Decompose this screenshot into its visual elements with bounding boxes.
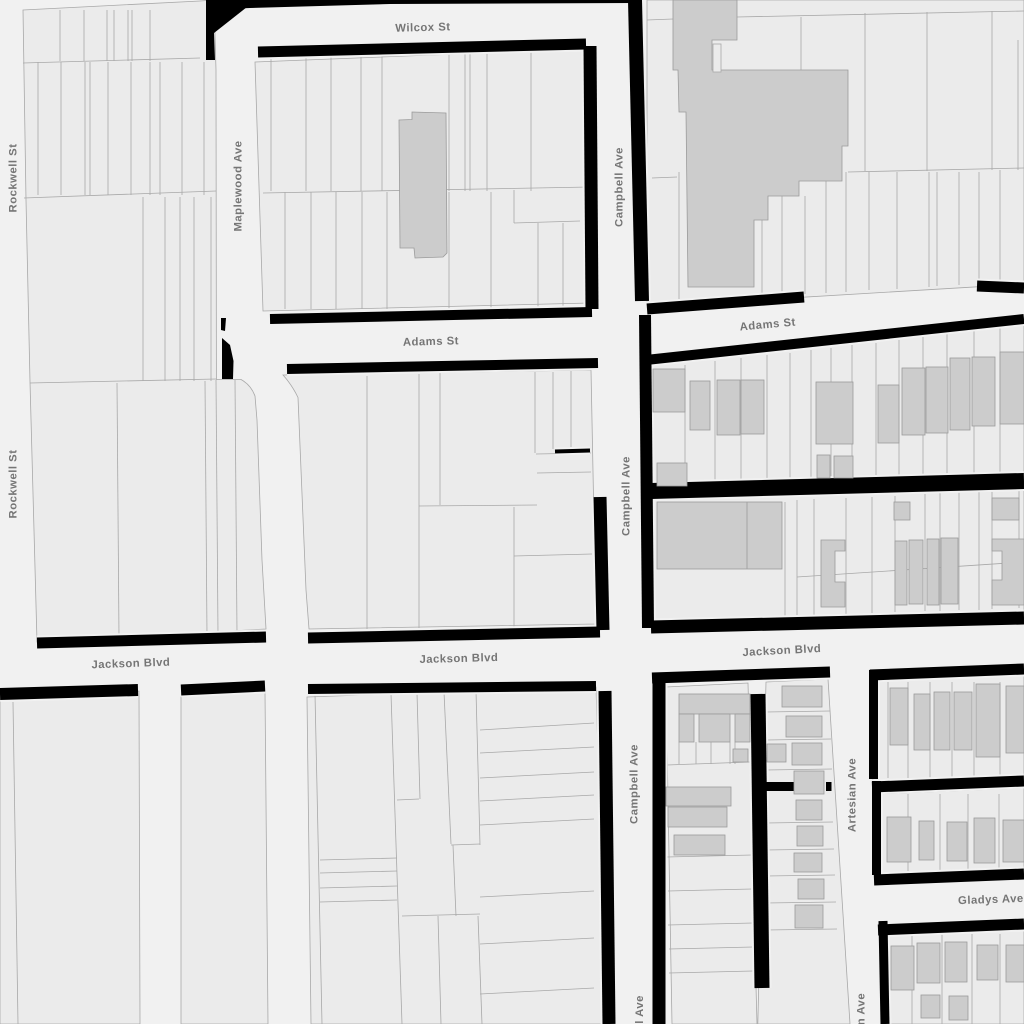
svg-text:Wilcox St: Wilcox St — [395, 21, 451, 34]
svg-text:Campbell Ave: Campbell Ave — [621, 456, 633, 536]
svg-text:Adams St: Adams St — [403, 335, 459, 348]
svg-text:Rockwell St: Rockwell St — [8, 450, 20, 519]
svg-text:Gladys Ave: Gladys Ave — [958, 893, 1024, 907]
svg-text:Rockwell St: Rockwell St — [8, 144, 20, 213]
svg-text:Jackson Blvd: Jackson Blvd — [419, 652, 498, 666]
svg-text:Campbell Ave: Campbell Ave — [614, 147, 626, 227]
svg-text:Campbell Ave: Campbell Ave — [629, 744, 641, 824]
svg-text:Maplewood Ave: Maplewood Ave — [233, 140, 245, 231]
svg-text:Artesian Ave: Artesian Ave — [847, 758, 859, 832]
svg-text:Artesian Ave: Artesian Ave — [856, 993, 868, 1024]
svg-text:Campbell Ave: Campbell Ave — [634, 995, 646, 1024]
